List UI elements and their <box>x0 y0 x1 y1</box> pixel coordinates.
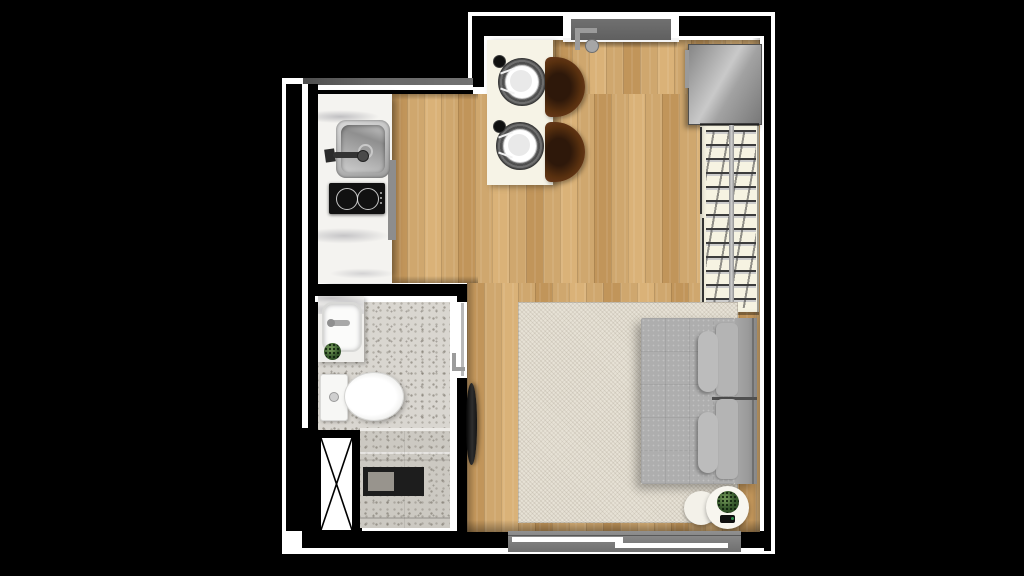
entry-door-handle-stem <box>575 28 580 50</box>
window-rail-right <box>618 543 728 548</box>
wall-bath-inner-right-line <box>450 302 457 528</box>
wardrobe-right-edge <box>757 125 759 312</box>
sofa-bed <box>641 318 757 484</box>
cup-2 <box>493 120 506 133</box>
cooktop-dot-1 <box>380 192 382 194</box>
shower-line-2 <box>360 459 450 461</box>
wall-bath-right-upper <box>457 284 467 302</box>
entry-door-knob <box>585 39 599 53</box>
window-rail-connector <box>615 537 623 548</box>
cooktop-burner-right <box>357 188 379 210</box>
wall-right <box>764 16 771 551</box>
faucet-head <box>357 150 369 162</box>
kitchen-counter-side-panel <box>388 160 396 240</box>
wall-top-left-segment <box>472 16 570 36</box>
tv <box>466 383 477 465</box>
cooktop-dot-3 <box>380 202 382 204</box>
plate-1-inner <box>510 70 532 92</box>
wall-cap-kitchen <box>303 78 473 85</box>
wall-bottom-right <box>741 531 764 548</box>
floor-plan-render <box>0 0 1024 576</box>
wall-bath-right-lower <box>457 378 467 531</box>
wardrobe-left-edge-2 <box>702 218 704 310</box>
bathroom-door <box>461 303 464 376</box>
remote-dot <box>731 517 734 520</box>
shower-line-3 <box>360 517 450 519</box>
refrigerator-handle <box>685 50 689 88</box>
wardrobe-rod <box>729 125 734 312</box>
plate-2-inner <box>508 134 530 156</box>
shadow-under-kitchen-wall <box>390 94 478 100</box>
wardrobe-left-edge <box>700 127 702 214</box>
refrigerator <box>688 44 762 125</box>
sofa-bolster-pillow-2 <box>698 412 718 473</box>
toilet-flush-button <box>329 392 339 402</box>
toilet-bowl <box>344 372 404 421</box>
wall-entry-left-chunk <box>472 16 484 87</box>
shadow-divider-top <box>390 276 478 283</box>
side-table-plant <box>717 491 739 513</box>
shower-mat-inset <box>368 472 394 491</box>
vanity-faucet-handle <box>327 319 335 327</box>
ventilation-shaft <box>318 435 355 533</box>
cooktop-dot-2 <box>380 197 382 199</box>
shower-line-1 <box>360 452 450 454</box>
wall-top-right-segment <box>676 16 764 36</box>
bathroom-door-handle <box>452 367 465 371</box>
sofa-bolster-pillow-1 <box>698 331 718 392</box>
shadow-entry-door <box>565 42 677 48</box>
cup-1 <box>493 55 506 68</box>
window-rail-left <box>512 537 619 542</box>
sofa-frame-line <box>752 318 754 484</box>
sofa-seat-cushion-2 <box>716 399 738 479</box>
vanity-plant <box>324 343 341 360</box>
sofa-seat-cushion-1 <box>716 323 738 396</box>
cooktop-burner-left <box>336 188 358 210</box>
wall-bath-divider <box>308 284 467 296</box>
wall-bottom-mid <box>467 531 508 548</box>
window-frame-line <box>508 535 741 536</box>
